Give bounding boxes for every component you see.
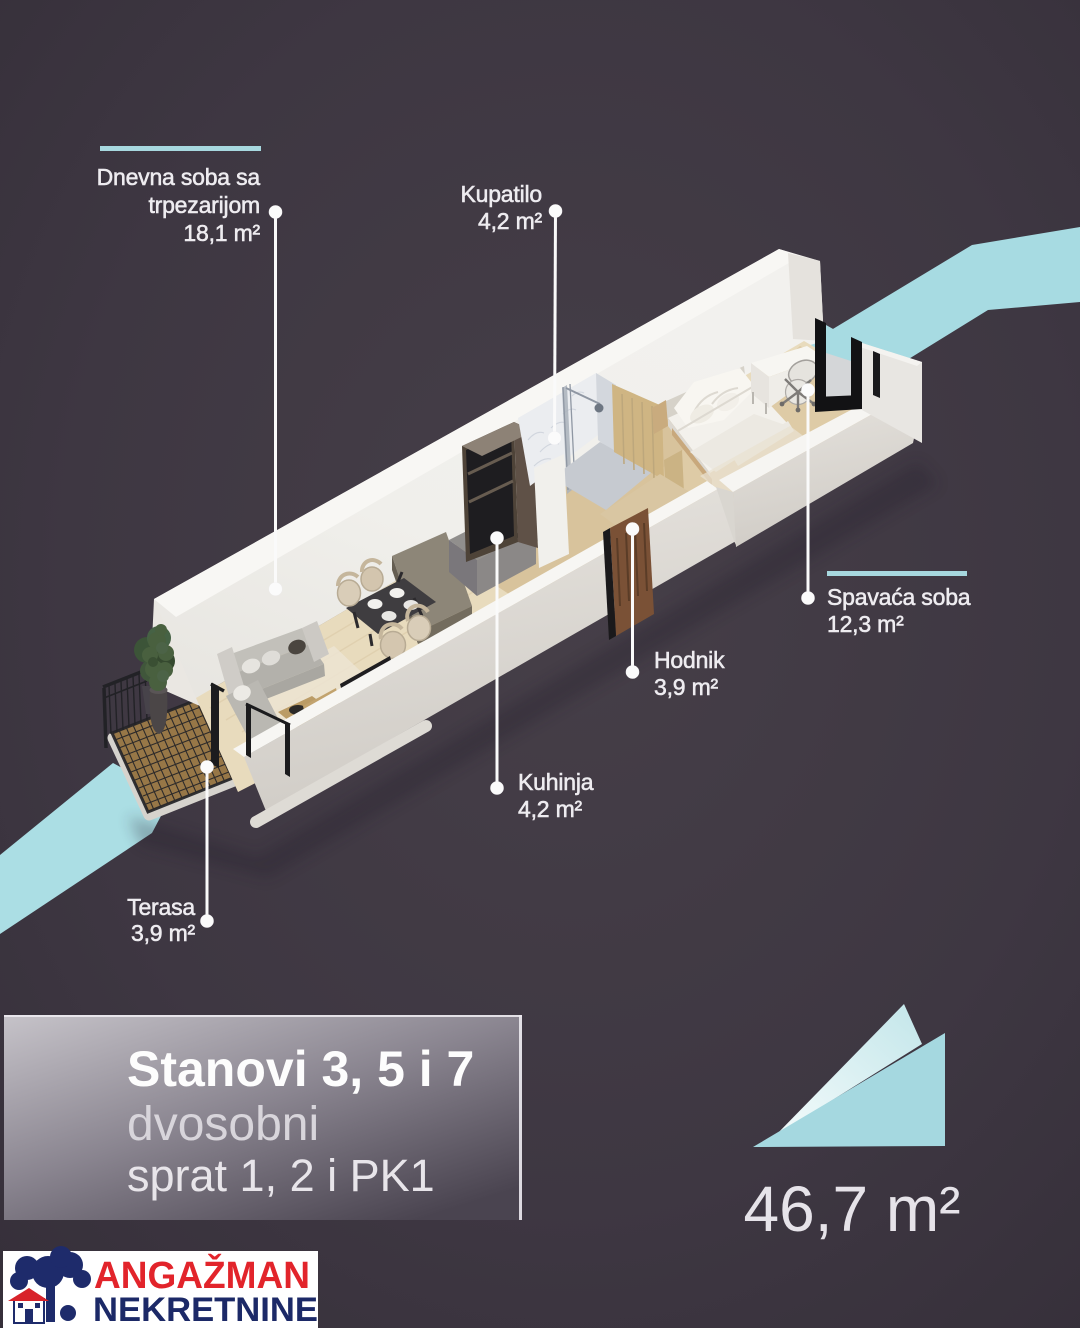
svg-text:Stanovi 3, 5 i 7: Stanovi 3, 5 i 7 bbox=[127, 1041, 474, 1097]
svg-text:NEKRETNINE: NEKRETNINE bbox=[93, 1291, 318, 1328]
svg-text:Kupatilo: Kupatilo bbox=[460, 181, 542, 207]
svg-text:Kuhinja: Kuhinja bbox=[518, 769, 594, 795]
svg-text:3,9 m²: 3,9 m² bbox=[131, 920, 196, 946]
svg-text:4,2 m²: 4,2 m² bbox=[518, 796, 583, 822]
svg-text:46,7 m²: 46,7 m² bbox=[744, 1173, 961, 1245]
svg-text:trpezarijom: trpezarijom bbox=[148, 192, 260, 218]
svg-text:3,9 m²: 3,9 m² bbox=[654, 674, 719, 700]
svg-text:18,1 m²: 18,1 m² bbox=[183, 220, 260, 246]
svg-text:Spavaća soba: Spavaća soba bbox=[827, 584, 971, 610]
svg-text:4,2 m²: 4,2 m² bbox=[478, 208, 543, 234]
svg-text:sprat 1, 2 i PK1: sprat 1, 2 i PK1 bbox=[127, 1150, 435, 1201]
svg-text:Dnevna soba sa: Dnevna soba sa bbox=[97, 164, 261, 190]
svg-text:dvosobni: dvosobni bbox=[127, 1098, 319, 1151]
svg-text:12,3 m²: 12,3 m² bbox=[827, 611, 904, 637]
svg-text:Terasa: Terasa bbox=[127, 894, 195, 920]
svg-text:Hodnik: Hodnik bbox=[654, 647, 725, 673]
